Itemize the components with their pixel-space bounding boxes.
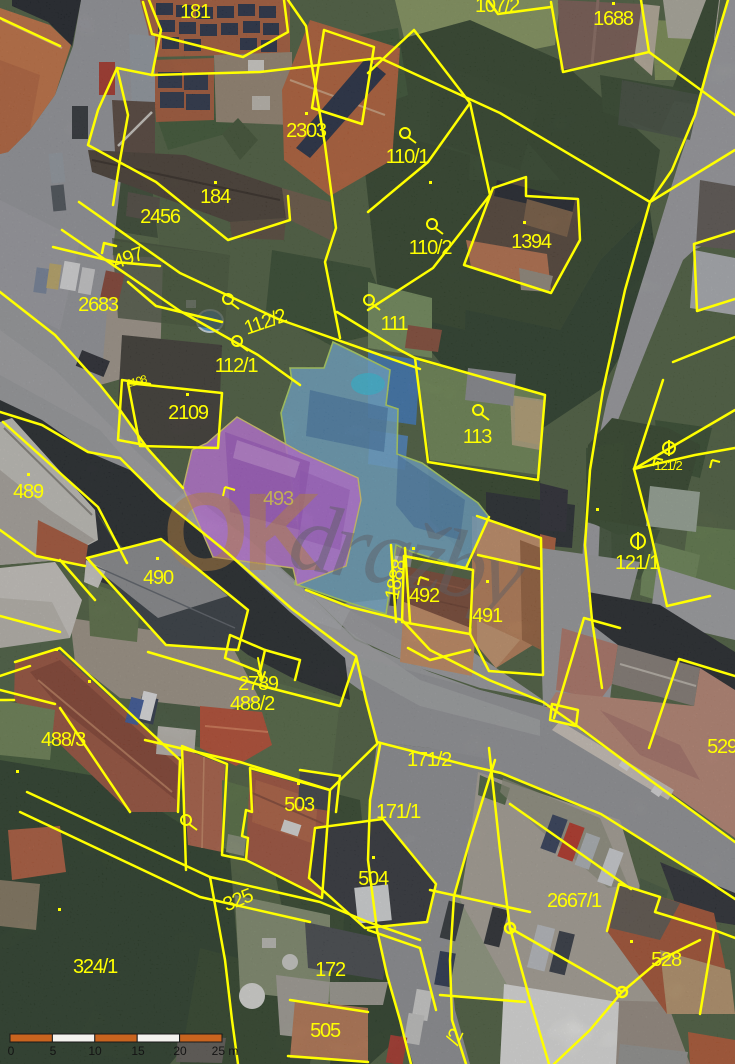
svg-text:111: 111	[381, 313, 409, 335]
svg-text:324/1: 324/1	[73, 956, 118, 978]
svg-text:0: 0	[8, 1044, 15, 1058]
svg-text:113: 113	[463, 426, 492, 448]
svg-text:491: 491	[472, 605, 503, 627]
svg-text:171/1: 171/1	[376, 801, 421, 823]
svg-text:493: 493	[263, 488, 294, 510]
svg-text:488/3: 488/3	[41, 729, 86, 751]
svg-text:2789: 2789	[238, 673, 279, 695]
svg-text:2109: 2109	[168, 402, 209, 424]
svg-text:528: 528	[651, 949, 682, 971]
svg-text:171/2: 171/2	[407, 749, 452, 771]
svg-text:121/2: 121/2	[654, 458, 682, 473]
svg-text:2303: 2303	[286, 120, 327, 142]
svg-text:181: 181	[180, 1, 211, 23]
svg-text:2456: 2456	[140, 206, 181, 228]
svg-text:503: 503	[284, 794, 315, 816]
svg-text:110/2: 110/2	[409, 237, 453, 259]
svg-text:505: 505	[310, 1020, 341, 1042]
svg-text:504: 504	[358, 868, 389, 890]
svg-text:2667/1: 2667/1	[547, 890, 602, 912]
svg-text:25 m: 25 m	[212, 1044, 239, 1058]
svg-text:184: 184	[200, 186, 231, 208]
svg-text:20: 20	[173, 1044, 187, 1058]
svg-text:5: 5	[50, 1044, 57, 1058]
svg-text:172: 172	[315, 959, 346, 981]
svg-text:2683: 2683	[78, 294, 119, 316]
svg-text:1688: 1688	[593, 8, 634, 30]
svg-text:1394: 1394	[511, 231, 552, 253]
svg-text:110/1: 110/1	[386, 146, 430, 168]
svg-text:10: 10	[88, 1044, 102, 1058]
svg-text:121/1: 121/1	[615, 552, 660, 574]
svg-text:112/1: 112/1	[215, 355, 259, 377]
svg-text:488/2: 488/2	[230, 693, 275, 715]
svg-text:492: 492	[409, 585, 440, 607]
svg-text:490: 490	[143, 567, 174, 589]
svg-text:15: 15	[131, 1044, 145, 1058]
svg-text:489: 489	[13, 481, 44, 503]
svg-text:107/2: 107/2	[475, 0, 520, 17]
svg-text:529: 529	[707, 736, 735, 758]
